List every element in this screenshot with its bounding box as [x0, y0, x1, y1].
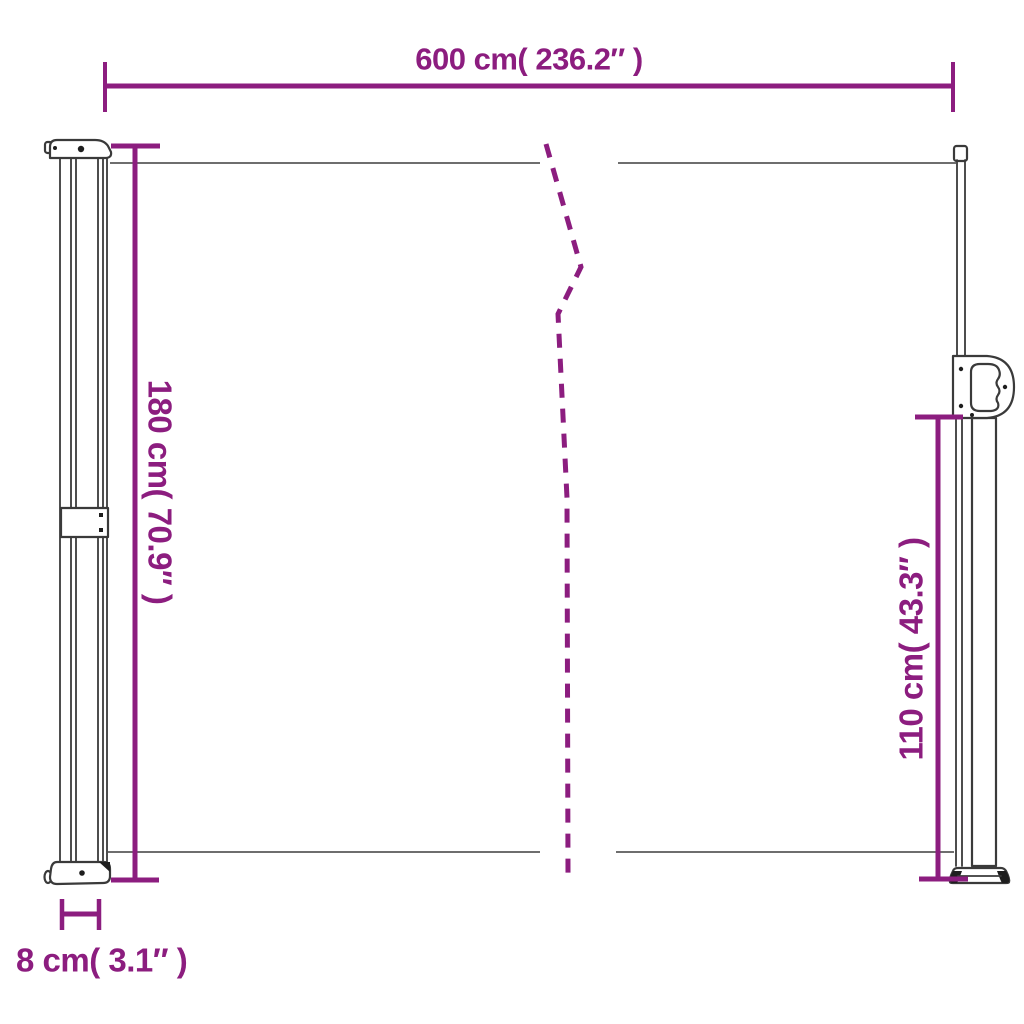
- handle-grip-cutout: [971, 364, 1000, 411]
- handle-screw-bottom-left: [959, 404, 963, 408]
- fabric-break-line: [546, 144, 581, 874]
- depth-dimension-label: 8 cm( 3.1″ ): [16, 944, 187, 977]
- pole-top-cap: [954, 146, 967, 161]
- bracket-screw-top: [99, 513, 103, 517]
- bracket-screw-bottom: [99, 528, 103, 532]
- height-right-dimension-label: 110 cm( 43.3″ ): [895, 538, 928, 761]
- cassette-post: [45, 140, 112, 884]
- cassette-wall-bracket: [61, 508, 108, 537]
- cassette-top-screw-small: [53, 146, 57, 150]
- cassette-bottom-screw: [79, 870, 85, 876]
- dimension-diagram: 600 cm( 236.2″ ) 180 cm( 70.9″ ) 110 cm(…: [0, 0, 1024, 1024]
- handle-screw-bottom: [970, 413, 974, 417]
- fabric-panel: [108, 163, 956, 852]
- support-pole: [950, 146, 1014, 883]
- cassette-top-screw: [78, 146, 84, 152]
- depth-dimension-line: [62, 899, 99, 930]
- handle-screw-top-left: [959, 367, 963, 371]
- width-dimension-label: 600 cm( 236.2″ ): [415, 44, 642, 75]
- height-left-dimension-label: 180 cm( 70.9″ ): [144, 380, 177, 605]
- pole-tube: [972, 418, 996, 866]
- handle-screw-right: [1003, 385, 1007, 389]
